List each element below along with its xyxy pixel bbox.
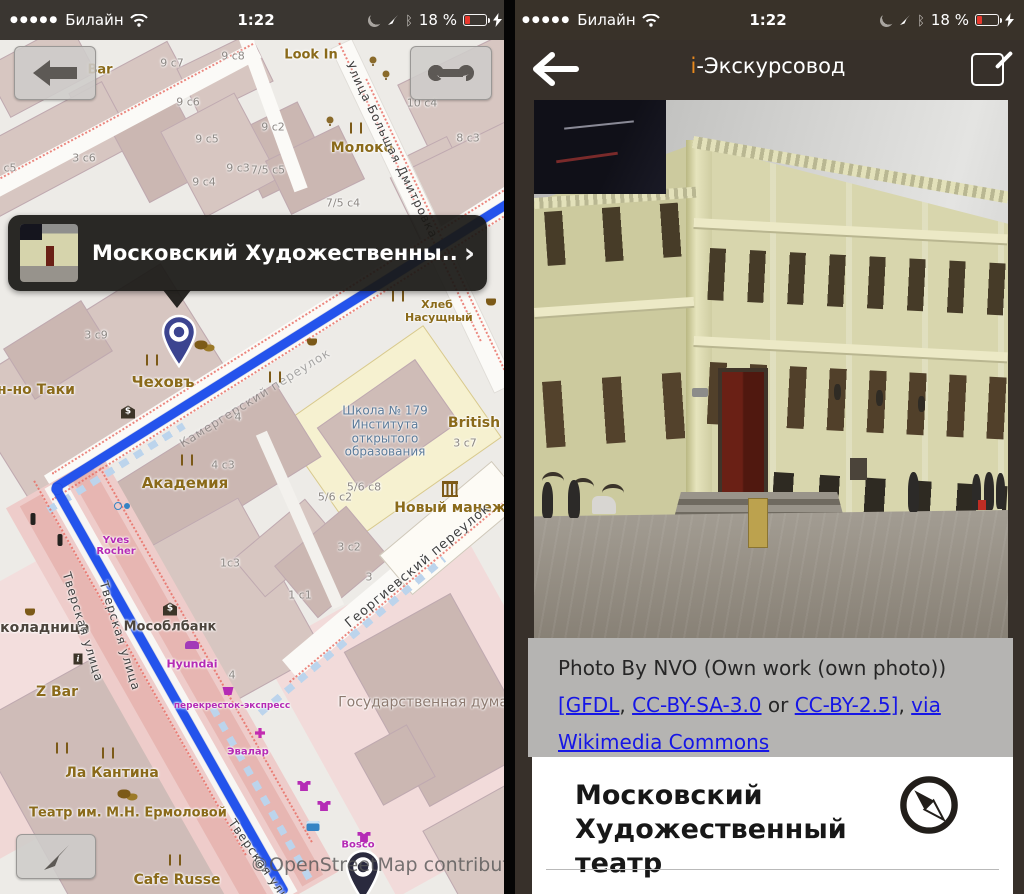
map-label: 4 с3: [211, 459, 235, 472]
map-label: н-но Таки: [0, 382, 75, 398]
map-label: Z Bar: [36, 684, 78, 700]
tree-icon: [383, 71, 390, 78]
map-label: 9 с5: [195, 133, 219, 146]
map-label: 4: [229, 669, 236, 682]
map-label: 3 с6: [72, 152, 96, 165]
map-label: перекресток-экспресс: [174, 701, 290, 711]
poi-title: Московский Художественный театр: [575, 779, 895, 881]
map-label: 7/5 с4: [326, 197, 360, 210]
compose-button[interactable]: [971, 53, 1004, 86]
map-label: 1с3: [220, 557, 240, 570]
map-pin-selected[interactable]: [160, 314, 198, 368]
battery-icon: [975, 14, 999, 26]
map-label: British: [448, 415, 500, 431]
map-label: 5/6 с2: [318, 491, 352, 504]
restaurant-icon: [350, 123, 362, 134]
poi-card: Московский Художественный театр: [532, 757, 1013, 894]
poi-photo: КАМЕРТОН ресторан: [534, 100, 1008, 638]
license-link[interactable]: CC-BY-2.5]: [795, 693, 899, 717]
do-not-disturb-moon-icon: [880, 14, 893, 27]
map-label: Академия: [142, 474, 229, 492]
attribution-text: ,: [898, 693, 911, 717]
car-dealer-icon: [185, 641, 199, 649]
map-label: 3: [366, 571, 373, 584]
theater-masks-icon: [118, 790, 131, 799]
back-button[interactable]: [14, 46, 96, 100]
tree-icon: [370, 57, 377, 64]
restaurant-icon: [392, 291, 404, 302]
info-icon: [74, 654, 83, 665]
battery-percent-label: 18 %: [931, 11, 969, 29]
attribution-text: ,: [619, 693, 632, 717]
charging-bolt-icon: [493, 13, 502, 27]
restaurant-icon: [181, 455, 193, 466]
locate-arrow-icon: [41, 842, 71, 872]
poi-callout[interactable]: Московский Художественны... ›: [8, 215, 487, 291]
map-label: с5: [3, 162, 16, 175]
map-label: 7/5 с5: [251, 164, 285, 177]
cafe-icon: [307, 339, 317, 346]
bicycle-icon: [114, 502, 122, 510]
restaurant-icon: [56, 743, 68, 754]
map-label: 9 с8: [221, 50, 245, 63]
map-label: Школа № 179 Института открытого образова…: [333, 404, 438, 459]
locate-button[interactable]: [16, 834, 96, 879]
map-label: 9 с4: [192, 176, 216, 189]
map-label: Театр им. М.Н. Ермоловой: [29, 806, 227, 821]
wrench-icon: [427, 62, 475, 84]
panel-divider: [504, 0, 515, 894]
tree-icon: [327, 117, 334, 124]
attribution-text: or: [762, 693, 795, 717]
cafe-icon: [486, 299, 496, 306]
map-label: Хлеб Насущный: [405, 298, 469, 324]
map-label: 9 с3: [226, 162, 250, 175]
battery-icon: [463, 14, 487, 26]
map-label: Эвалар: [227, 747, 269, 758]
restaurant-icon: [269, 372, 281, 383]
clothing-shop-icon: [298, 781, 311, 791]
map-label: Hyundai: [166, 658, 217, 671]
app-title: i-Экскурсовод: [512, 54, 1024, 78]
location-arrow-icon: [387, 14, 399, 26]
map-label: 3 с7: [453, 437, 477, 450]
map-label: Государственная дума: [338, 695, 508, 712]
map-label: Чеховъ: [131, 373, 194, 391]
status-bar: ●●●●● Билайн 1:22 18 %: [0, 0, 512, 40]
status-bar: ●●●●● Билайн 1:22 18 %: [512, 0, 1024, 40]
map-label: 9 с7: [160, 57, 184, 70]
map-label: Мособлбанк: [124, 620, 217, 635]
guide-panel: ●●●●● Билайн 1:22 18 % i-Экскурсовод: [512, 0, 1024, 894]
restaurant-icon: [102, 748, 114, 759]
bus-stop-icon: [307, 821, 320, 831]
app-header: i-Экскурсовод: [512, 40, 1024, 98]
map-label: Cafe Russe: [133, 872, 220, 888]
callout-tail: [163, 290, 191, 308]
battery-percent-label: 18 %: [419, 11, 457, 29]
screen: BarLook InМолокоХлеб НасущныйЧеховън-но …: [0, 0, 1024, 894]
map-label: 9 с2: [261, 121, 285, 134]
poi-thumbnail: [20, 224, 78, 282]
back-arrow-icon: [33, 58, 77, 88]
map-label: Look In: [284, 48, 337, 63]
map-label: 8 с3: [456, 132, 480, 145]
settings-button[interactable]: [410, 46, 492, 100]
traffic-light-icon: [58, 534, 63, 546]
map-label: 3 с2: [337, 541, 361, 554]
restaurant-icon: [146, 355, 158, 366]
do-not-disturb-moon-icon: [368, 14, 381, 27]
map[interactable]: BarLook InМолокоХлеб НасущныйЧеховън-но …: [0, 0, 512, 894]
attribution-text: Photo By NVO (Own work (own photo)): [558, 656, 946, 680]
map-label: Ла Кантина: [65, 765, 159, 781]
license-link[interactable]: [GFDL: [558, 693, 619, 717]
osm-attribution: ©OpenStreetMap contributors: [250, 854, 512, 876]
compass-icon[interactable]: [897, 773, 961, 837]
map-label: 3 с9: [84, 329, 108, 342]
cafe-icon: [25, 609, 35, 616]
divider: [546, 869, 999, 870]
license-link[interactable]: CC-BY-SA-3.0: [632, 693, 761, 717]
photo-attribution: Photo By NVO (Own work (own photo)) [GFD…: [528, 638, 1013, 757]
clothing-shop-icon: [318, 801, 331, 811]
museum-icon: [442, 481, 458, 497]
restaurant-icon: [169, 855, 181, 866]
map-label: Yves Rocher: [93, 535, 139, 557]
charging-bolt-icon: [1005, 13, 1014, 27]
chevron-right-icon: ›: [464, 240, 475, 267]
theatre-door: [718, 368, 768, 498]
map-label: 9 с6: [176, 96, 200, 109]
map-label: 4: [235, 411, 242, 424]
bluetooth-icon: [917, 11, 925, 29]
location-arrow-icon: [899, 14, 911, 26]
billboard: [534, 100, 666, 194]
poi-callout-title: Московский Художественны...: [92, 241, 458, 265]
map-label: 1 с1: [288, 589, 312, 602]
bluetooth-icon: [405, 11, 413, 29]
map-panel: BarLook InМолокоХлеб НасущныйЧеховън-но …: [0, 0, 512, 894]
traffic-light-icon: [31, 513, 36, 525]
